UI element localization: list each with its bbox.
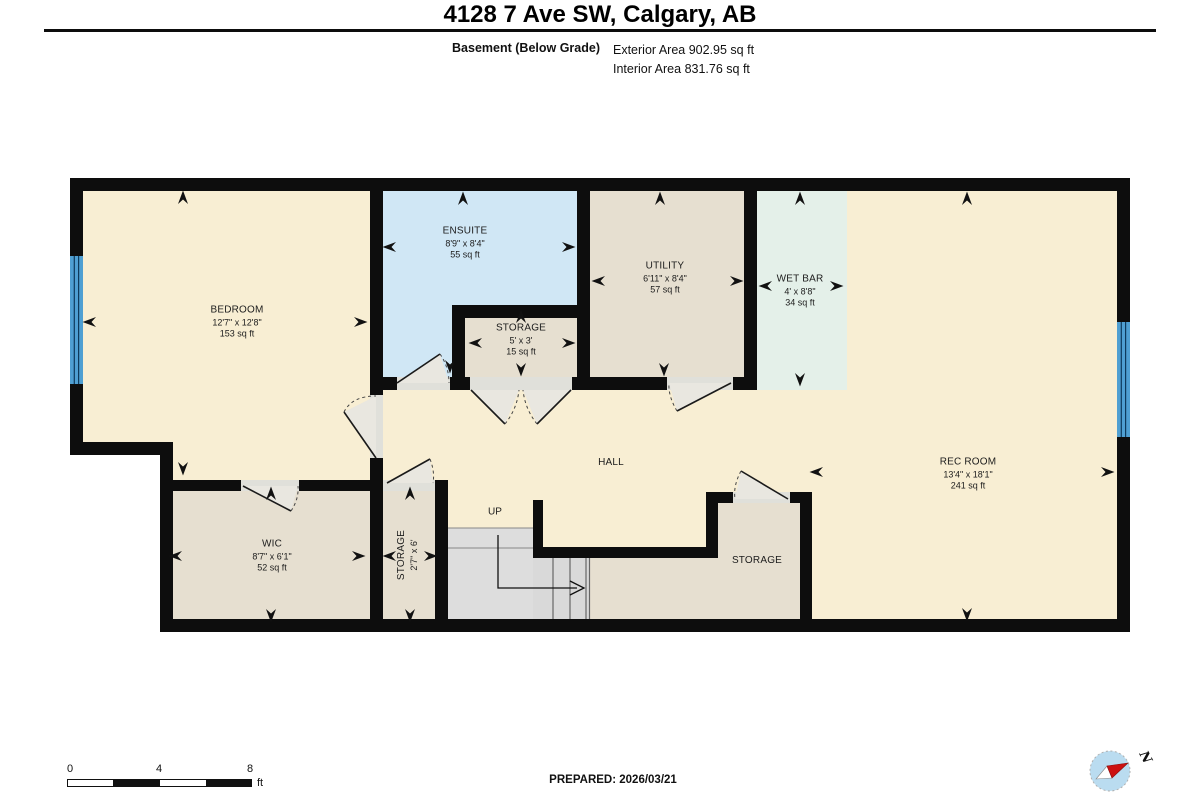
room-label-wic: WIC8'7" x 6'1"52 sq ft [252, 539, 291, 574]
window-right [1117, 322, 1130, 437]
scale-tick-4: 4 [156, 763, 162, 775]
room-label-storage-vertical: STORAGE2'7" x 6' [396, 530, 420, 580]
scale-unit: ft [257, 777, 263, 789]
room-label-hall: HALL [598, 457, 624, 470]
stairs-up-label: UP [488, 507, 502, 518]
scale-tick-8: 8 [247, 763, 253, 775]
room-label-wet-bar: WET BAR4' x 8'8"34 sq ft [777, 274, 824, 309]
room-label-storage-small: STORAGE5' x 3'15 sq ft [496, 323, 546, 358]
scale-bar-segment [206, 780, 252, 786]
room-label-bedroom: BEDROOM12'7" x 12'8"153 sq ft [210, 305, 263, 340]
room-label-ensuite: ENSUITE8'9" x 8'4"55 sq ft [443, 226, 488, 261]
floor-plan-page: 4128 7 Ave SW, Calgary, AB Basement (Bel… [0, 0, 1200, 800]
room-label-rec-room: REC ROOM13'4" x 18'1"241 sq ft [940, 457, 997, 492]
scale-bar [67, 779, 252, 787]
scale-tick-0: 0 [67, 763, 73, 775]
room-label-storage-lower: STORAGE [732, 555, 782, 568]
compass [1090, 751, 1130, 791]
window-left [70, 256, 83, 384]
floor-plan-svg [0, 0, 1200, 800]
room-label-utility: UTILITY6'11" x 8'4"57 sq ft [643, 261, 687, 296]
prepared-date: PREPARED: 2026/03/21 [549, 774, 677, 786]
scale-bar-segment [113, 780, 160, 786]
